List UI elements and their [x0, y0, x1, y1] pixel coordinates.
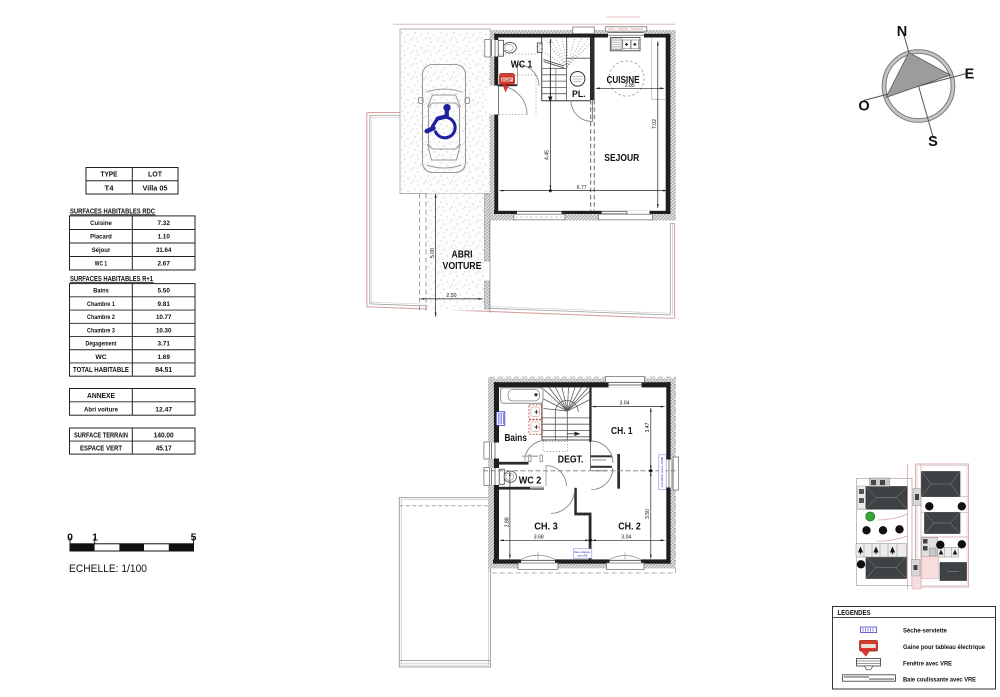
svg-text:N: N — [897, 24, 907, 40]
svg-text:Dégagement: Dégagement — [86, 341, 118, 348]
svg-text:Baie coulissante avec VRE: Baie coulissante avec VRE — [903, 677, 977, 684]
svg-text:12.47: 12.47 — [155, 407, 172, 414]
svg-text:3.50: 3.50 — [645, 509, 651, 519]
svg-text:O: O — [858, 99, 869, 115]
svg-text:1.10: 1.10 — [158, 234, 171, 241]
svg-text:4.45: 4.45 — [545, 150, 551, 160]
svg-text:ESPACE VERT: ESPACE VERT — [80, 446, 123, 453]
svg-text:LEGENDES: LEGENDES — [838, 610, 871, 617]
svg-text:3.68: 3.68 — [534, 534, 544, 540]
svg-text:3.04: 3.04 — [621, 534, 631, 540]
svg-text:1: 1 — [92, 532, 98, 544]
svg-text:10.30: 10.30 — [156, 327, 172, 334]
svg-text:SEJOUR: SEJOUR — [604, 152, 639, 164]
svg-text:45.17: 45.17 — [156, 446, 172, 453]
svg-text:PL.: PL. — [572, 89, 586, 99]
svg-text:TYPE: TYPE — [101, 172, 118, 179]
svg-text:84.51: 84.51 — [155, 367, 172, 374]
svg-text:140.00: 140.00 — [154, 433, 174, 440]
svg-text:2.88: 2.88 — [504, 517, 510, 527]
svg-text:3.71: 3.71 — [158, 341, 171, 348]
svg-text:CH. 1: CH. 1 — [611, 426, 633, 437]
svg-text:Fenêtre avec VRE: Fenêtre avec VRE — [903, 661, 953, 668]
svg-text:WC 2: WC 2 — [519, 475, 542, 486]
svg-text:5: 5 — [191, 532, 197, 544]
svg-text:ECHELLE: 1/100: ECHELLE: 1/100 — [69, 563, 147, 575]
svg-text:0: 0 — [67, 532, 73, 544]
svg-text:5.50: 5.50 — [158, 288, 171, 295]
svg-text:7.32: 7.32 — [158, 220, 171, 227]
svg-text:ANNEXE: ANNEXE — [87, 393, 115, 400]
svg-text:Abri voiture: Abri voiture — [84, 407, 118, 414]
svg-text:Sèche-serviette: Sèche-serviette — [903, 628, 947, 635]
svg-text:EDF: EDF — [502, 77, 513, 82]
svg-text:31.64: 31.64 — [156, 247, 172, 254]
svg-text:Placard: Placard — [90, 234, 112, 241]
svg-text:3.47: 3.47 — [645, 422, 651, 432]
svg-text:CUISINE: CUISINE — [607, 75, 640, 86]
svg-text:5.00: 5.00 — [430, 248, 436, 258]
svg-text:ABRI: ABRI — [452, 248, 473, 260]
svg-text:DEGT.: DEGT. — [558, 455, 584, 466]
svg-text:Chambre 3: Chambre 3 — [87, 327, 115, 334]
svg-text:WC: WC — [95, 354, 106, 361]
svg-text:WC 1: WC 1 — [95, 261, 108, 268]
svg-text:Bains: Bains — [93, 288, 109, 295]
svg-text:SURFACES HABITABLES RDC: SURFACES HABITABLES RDC — [70, 206, 156, 215]
svg-text:LOT: LOT — [148, 172, 163, 179]
svg-text:9.81: 9.81 — [158, 301, 171, 308]
svg-text:3.04: 3.04 — [620, 401, 630, 407]
svg-text:Chambre 1: Chambre 1 — [87, 301, 115, 308]
svg-text:Chambre 2: Chambre 2 — [87, 314, 115, 321]
svg-text:SURFACES HABITABLES R+1: SURFACES HABITABLES R+1 — [70, 274, 153, 283]
svg-text:2.50: 2.50 — [447, 293, 457, 299]
svg-text:VOITURE: VOITURE — [443, 260, 482, 272]
svg-text:Villa 05: Villa 05 — [143, 185, 168, 192]
svg-text:1.69: 1.69 — [158, 354, 171, 361]
svg-text:Séjour: Séjour — [92, 247, 111, 254]
svg-text:Bains: Bains — [504, 433, 527, 444]
svg-text:CH. 3: CH. 3 — [534, 522, 558, 533]
svg-text:2.67: 2.67 — [158, 261, 171, 268]
svg-text:7.02: 7.02 — [652, 119, 658, 129]
svg-text:TOTAL HABITABLE: TOTAL HABITABLE — [73, 367, 129, 374]
svg-text:Fenêtre avec VRE: Fenêtre avec VRE — [660, 457, 664, 487]
svg-text:CH. 2: CH. 2 — [618, 522, 641, 533]
svg-text:avec VRE: avec VRE — [578, 554, 588, 558]
svg-text:S: S — [928, 134, 938, 150]
svg-text:SURFACE TERRAIN: SURFACE TERRAIN — [74, 433, 128, 440]
svg-text:6.77: 6.77 — [577, 185, 587, 191]
svg-text:WC 1: WC 1 — [511, 60, 533, 71]
svg-text:Cuisine: Cuisine — [90, 220, 112, 227]
svg-text:T4: T4 — [105, 185, 114, 192]
svg-text:E: E — [965, 67, 975, 83]
svg-text:Gaine pour tableau électrique: Gaine pour tableau électrique — [903, 644, 985, 651]
svg-text:10.77: 10.77 — [156, 314, 172, 321]
